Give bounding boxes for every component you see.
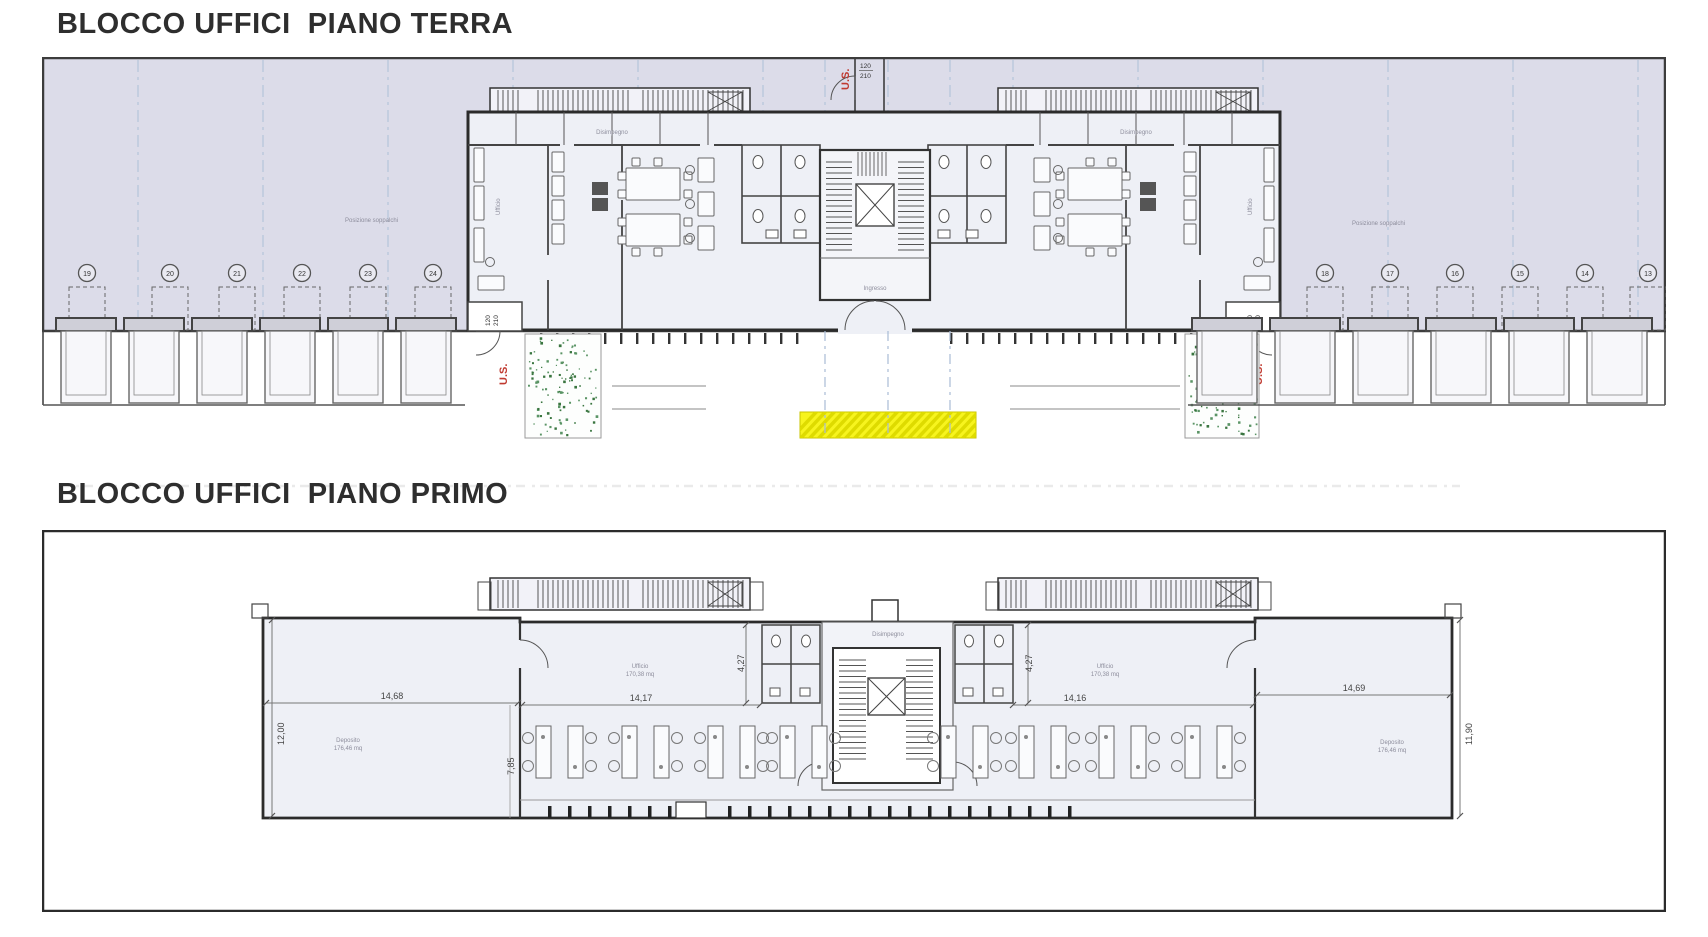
- building-ground-floor: Disimpegno Disimpegno Ufficio Ufficio In…: [468, 112, 1280, 344]
- dim-bath-right: 4,27: [1024, 654, 1034, 672]
- svg-text:Disimpegno: Disimpegno: [872, 632, 904, 638]
- parking-number: 19: [83, 271, 91, 278]
- room-label: Ufficio: [1248, 198, 1254, 215]
- room-label: Ingresso: [863, 286, 887, 292]
- walkway: [612, 386, 1180, 409]
- door-height-label: 210: [860, 73, 871, 80]
- plan1-drawing: U.S. 120 210: [42, 57, 1666, 440]
- dim-office-right: 14,16: [1064, 693, 1087, 703]
- parking-number: 24: [429, 271, 437, 278]
- wing-note: Posizione soppalchi: [1352, 221, 1405, 227]
- svg-text:Ufficio: Ufficio: [632, 664, 649, 670]
- svg-text:Deposito: Deposito: [336, 738, 360, 744]
- parking-number: 16: [1451, 271, 1459, 278]
- parking-number: 13: [1644, 271, 1652, 278]
- dim-office-left-v: 7,85: [506, 757, 516, 775]
- parking-number: 22: [298, 271, 306, 278]
- parking-number: 15: [1516, 271, 1524, 278]
- room-label: Disimpegno: [1120, 130, 1152, 136]
- svg-text:U.S.: U.S.: [498, 364, 510, 385]
- svg-text:210: 210: [493, 315, 500, 326]
- dim-wing-left: 14,68: [381, 691, 404, 701]
- dim-wing-left-v: 12,00: [276, 722, 286, 745]
- parking-number: 20: [166, 271, 174, 278]
- parking-number: 17: [1386, 271, 1394, 278]
- exit-label: U.S.: [840, 69, 852, 90]
- dim-office-left: 14,17: [630, 693, 653, 703]
- highlight-area: [790, 408, 1018, 440]
- floorplan-page: { "titles": { "plan1": "BLOCCO UFFICI PI…: [0, 0, 1708, 937]
- dim-wing-right-v: 11,90: [1464, 723, 1474, 745]
- svg-text:170,38 mq: 170,38 mq: [1091, 672, 1119, 678]
- svg-text:176,46 mq: 176,46 mq: [334, 746, 362, 752]
- roof-box: [872, 600, 898, 622]
- dim-wing-right: 14,69: [1343, 683, 1366, 693]
- building-first-floor: [252, 604, 1461, 818]
- plan2-drawing: 14,68 12,00 14,17 7,85 4,27 4,27 14,16 1…: [42, 530, 1666, 912]
- parking-number: 18: [1321, 271, 1329, 278]
- parking-number: 14: [1581, 271, 1589, 278]
- svg-text:176,46 mq: 176,46 mq: [1378, 748, 1406, 754]
- svg-text:Ufficio: Ufficio: [1097, 664, 1114, 670]
- room-label: Ufficio: [496, 198, 502, 215]
- parking-number: 23: [364, 271, 372, 278]
- plan1-title: BLOCCO UFFICI PIANO TERRA: [57, 8, 513, 41]
- svg-text:Deposito: Deposito: [1380, 740, 1404, 746]
- svg-text:170,38 mq: 170,38 mq: [626, 672, 654, 678]
- room-label: Disimpegno: [596, 130, 628, 136]
- door-width-label: 120: [860, 63, 871, 70]
- stair-core: [820, 150, 930, 300]
- exit-left: U.S. 120 210: [468, 302, 522, 385]
- svg-text:120: 120: [485, 315, 492, 326]
- plan2-title: BLOCCO UFFICI PIANO PRIMO: [57, 478, 508, 511]
- parking-number: 21: [233, 271, 241, 278]
- facade-mullions: [540, 333, 1208, 344]
- wing-note: Posizione soppalchi: [345, 218, 398, 224]
- dim-bath-left: 4,27: [736, 654, 746, 672]
